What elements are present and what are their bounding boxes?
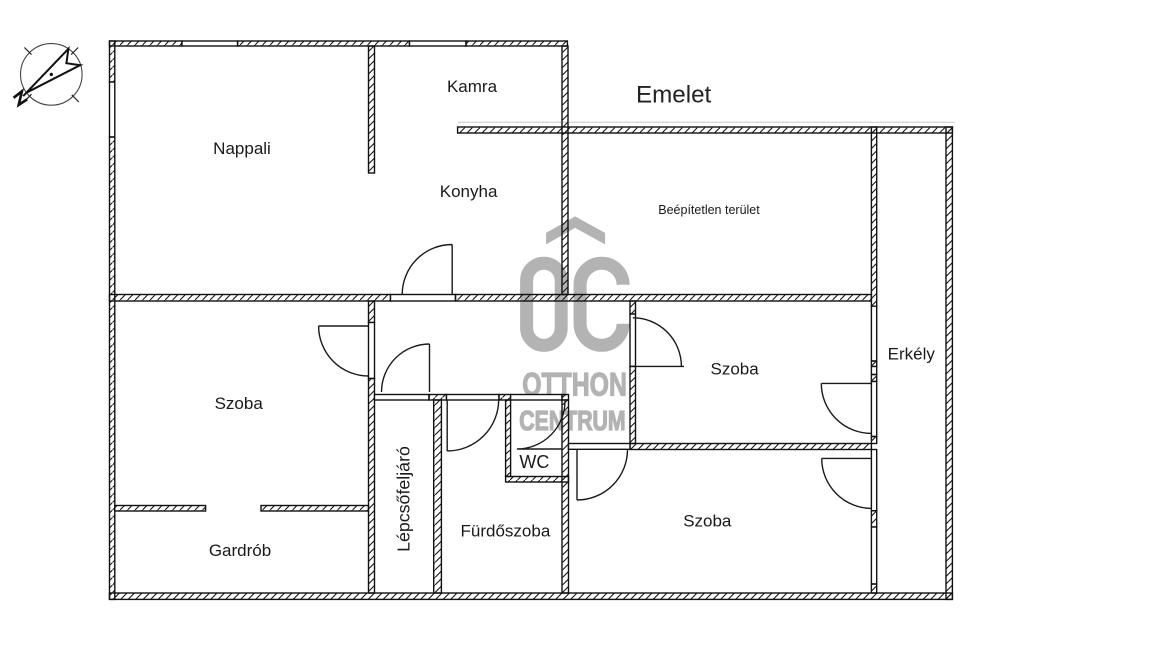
- svg-text:Szoba: Szoba: [710, 359, 759, 378]
- svg-text:Fürdőszoba: Fürdőszoba: [461, 522, 551, 541]
- svg-text:Nappali: Nappali: [213, 139, 271, 158]
- svg-text:Emelet: Emelet: [636, 82, 712, 109]
- svg-text:Lépcsőfeljáró: Lépcsőfeljáró: [394, 446, 414, 552]
- svg-text:Szoba: Szoba: [215, 394, 264, 413]
- svg-text:Beépítetlen terület: Beépítetlen terület: [658, 203, 760, 217]
- svg-text:CENTRUM: CENTRUM: [519, 406, 625, 436]
- svg-text:Erkély: Erkély: [888, 345, 936, 364]
- svg-text:Szoba: Szoba: [683, 511, 732, 530]
- svg-text:Gardrób: Gardrób: [209, 541, 271, 560]
- svg-text:Kamra: Kamra: [447, 77, 498, 96]
- svg-text:WC: WC: [519, 452, 549, 472]
- svg-text:Konyha: Konyha: [440, 182, 498, 201]
